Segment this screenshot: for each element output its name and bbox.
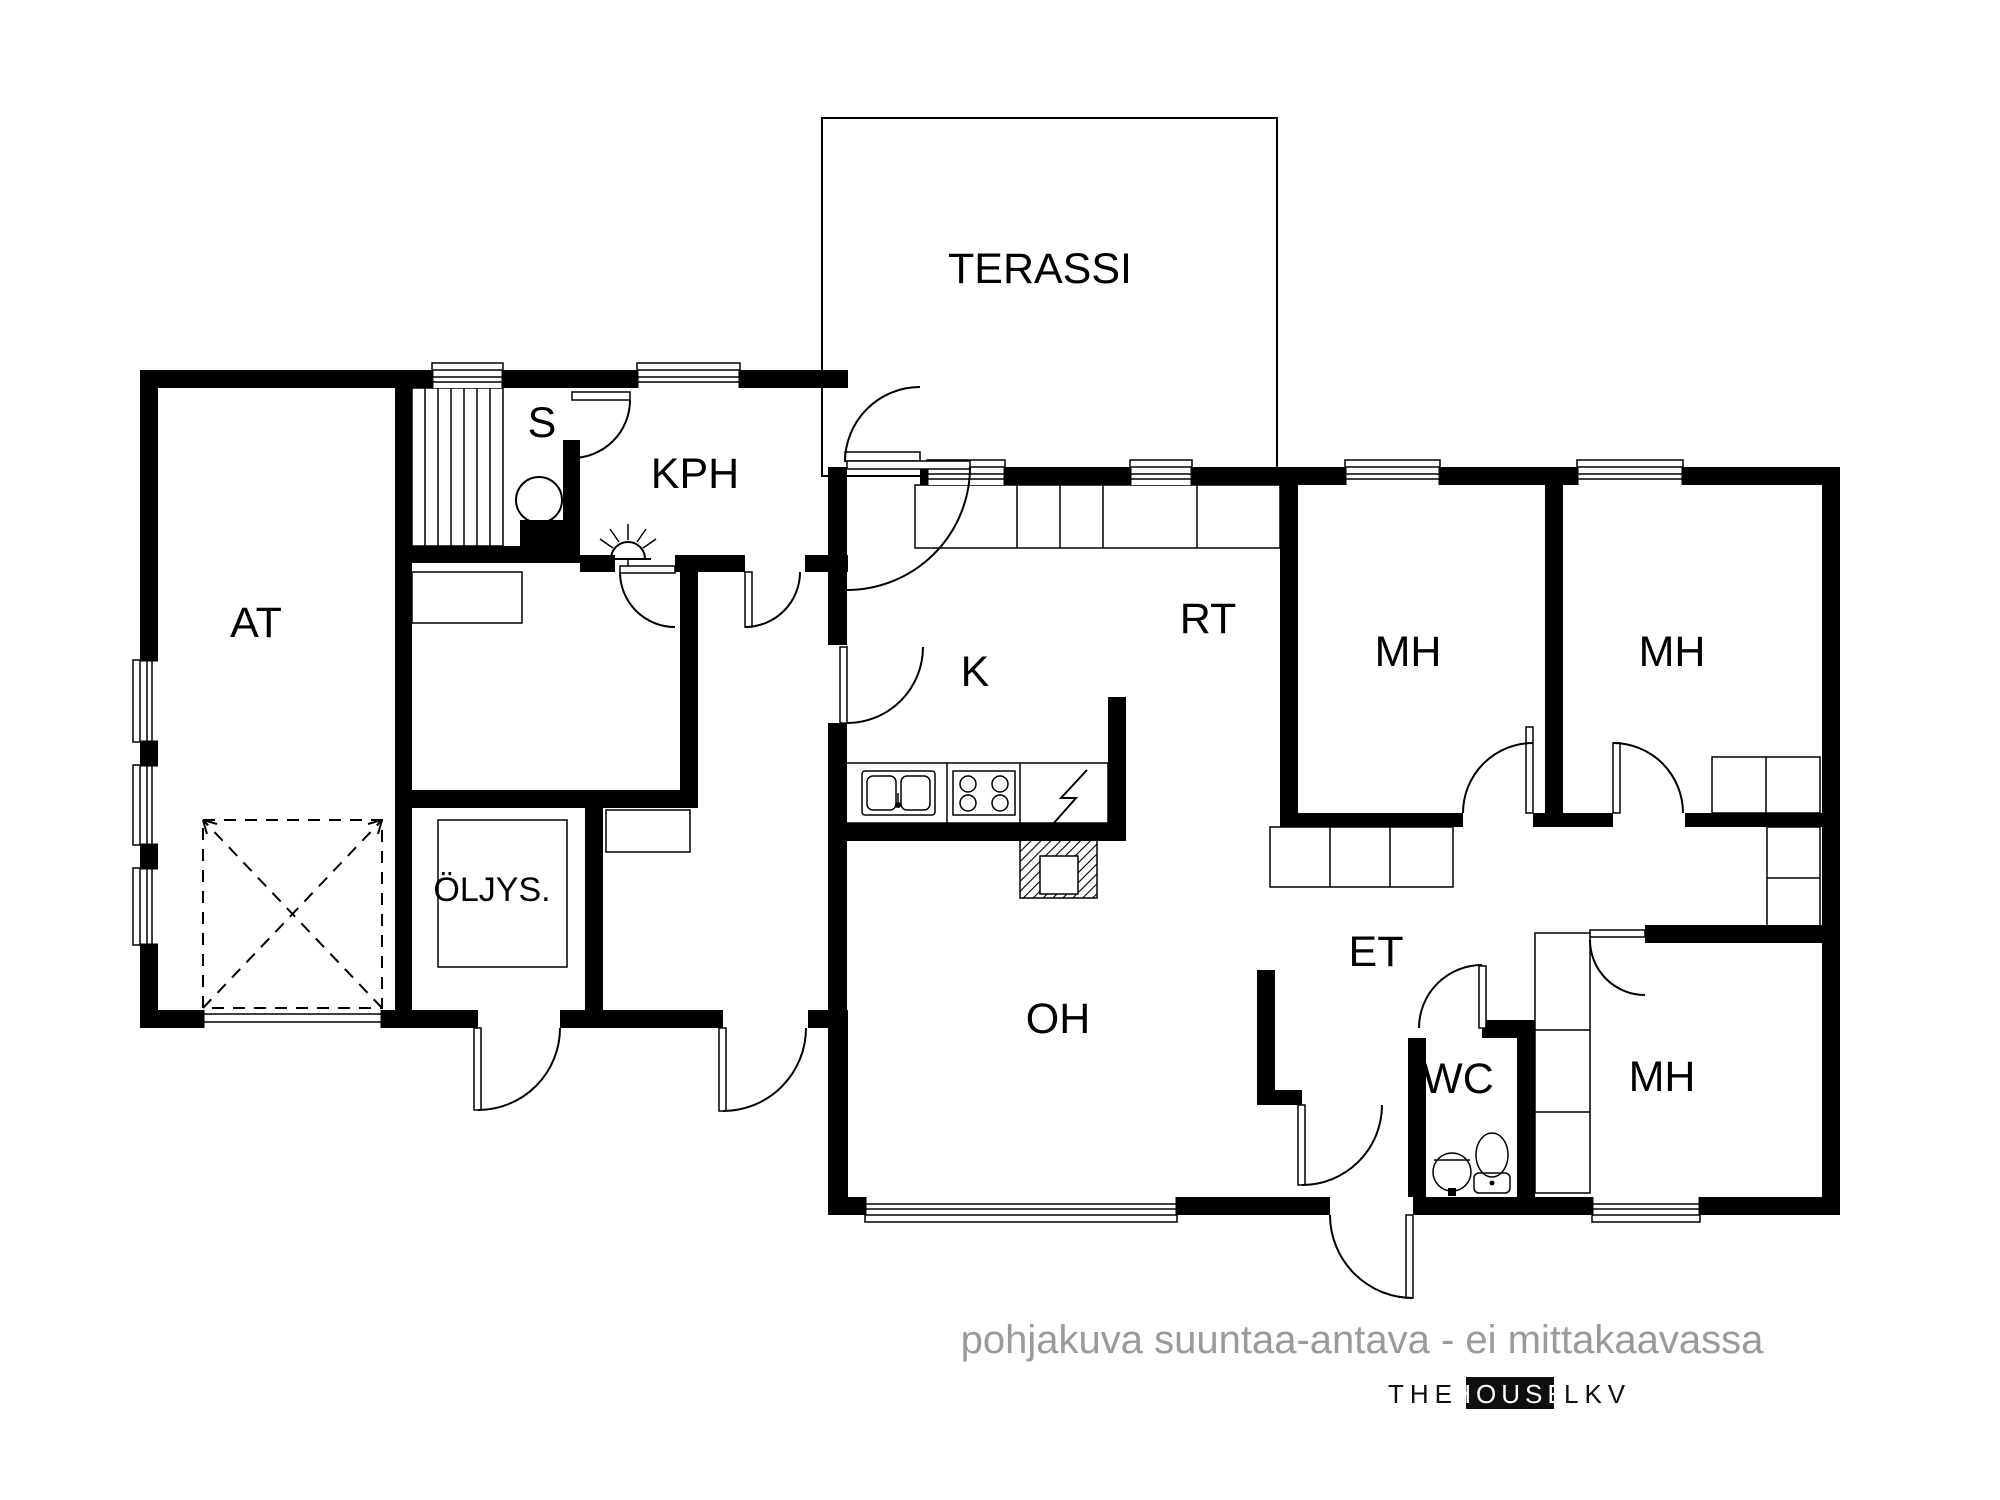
- room-label-oh: OH: [1026, 995, 1091, 1043]
- room-label-kph: KPH: [651, 450, 739, 498]
- room-label-at: AT: [230, 599, 282, 647]
- brand-logo: THE HOUSE LKV: [1388, 1377, 1631, 1409]
- floorplan-page: TERASSI AT S KPH K RT MH MH MH ÖLJYS. OH…: [0, 0, 2000, 1500]
- disclaimer-caption: pohjakuva suuntaa-antava - ei mittakaava…: [961, 1318, 1764, 1362]
- sauna-heater-block: [520, 520, 565, 547]
- floorplan-drawing: TERASSI AT S KPH K RT MH MH MH ÖLJYS. OH…: [0, 0, 2000, 1500]
- room-label-rt: RT: [1180, 595, 1237, 643]
- room-label-mh-bottom: MH: [1629, 1053, 1696, 1101]
- room-label-et: ET: [1349, 928, 1404, 976]
- room-label-terassi: TERASSI: [948, 245, 1132, 293]
- brand-lkv: LKV: [1564, 1379, 1631, 1409]
- room-label-mh-top-left: MH: [1375, 628, 1442, 676]
- room-label-oljys: ÖLJYS.: [433, 871, 550, 909]
- background: [0, 0, 2000, 1500]
- room-label-k: K: [961, 648, 990, 696]
- room-label-s: S: [528, 399, 557, 447]
- brand-the: THE: [1388, 1379, 1458, 1409]
- room-label-mh-top-right: MH: [1639, 628, 1706, 676]
- room-label-wc: WC: [1422, 1055, 1494, 1103]
- chimney: [1020, 838, 1097, 898]
- brand-house: HOUSE: [1452, 1379, 1569, 1409]
- garage-door: [203, 1010, 382, 1028]
